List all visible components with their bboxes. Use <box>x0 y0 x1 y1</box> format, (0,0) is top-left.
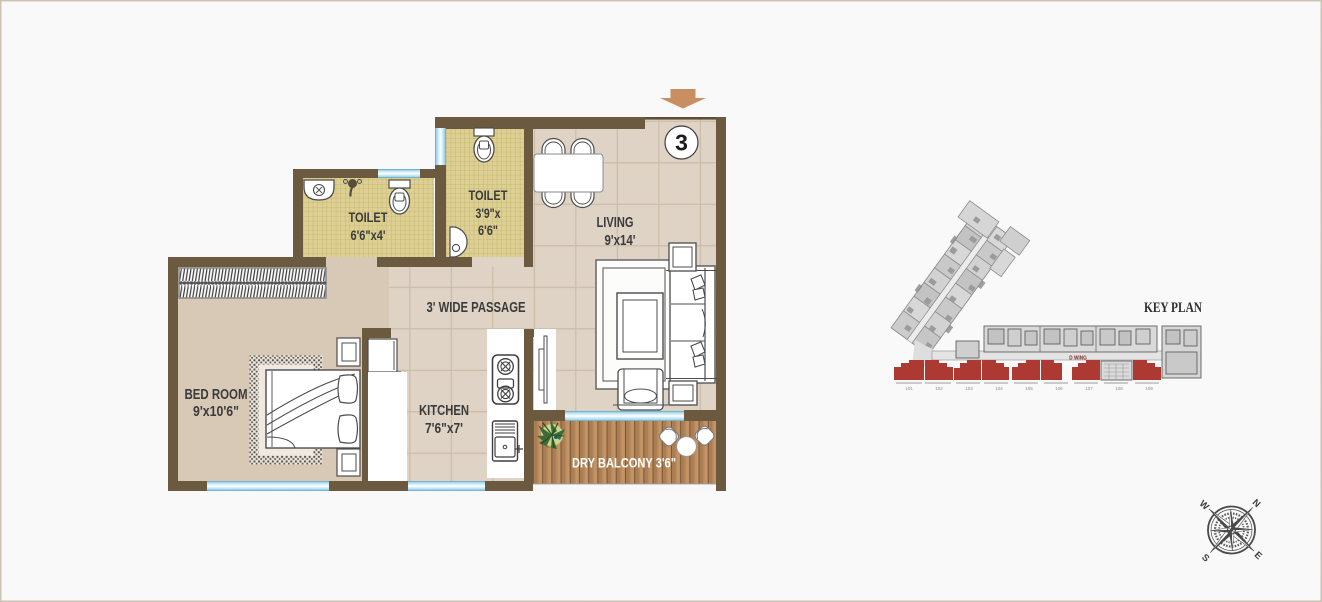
svg-text:6'6"x4': 6'6"x4' <box>351 227 386 243</box>
svg-text:105: 105 <box>1025 386 1033 391</box>
svg-text:KITCHEN: KITCHEN <box>419 403 469 419</box>
svg-text:LIVING: LIVING <box>597 215 634 231</box>
svg-text:TOILET: TOILET <box>349 209 388 225</box>
svg-text:104: 104 <box>995 386 1003 391</box>
svg-text:3' WIDE PASSAGE: 3' WIDE PASSAGE <box>427 300 526 316</box>
svg-text:TOILET: TOILET <box>469 187 508 203</box>
svg-text:108: 108 <box>1115 386 1123 391</box>
svg-text:107: 107 <box>1085 386 1093 391</box>
svg-text:6'6": 6'6" <box>478 222 498 238</box>
svg-text:102: 102 <box>935 386 943 391</box>
svg-text:KEY PLAN: KEY PLAN <box>1144 300 1202 316</box>
svg-text:D WING: D WING <box>1069 356 1087 362</box>
svg-text:DRY BALCONY 3'6": DRY BALCONY 3'6" <box>572 456 676 471</box>
svg-text:3'9"x: 3'9"x <box>476 205 501 221</box>
svg-text:7'6"x7': 7'6"x7' <box>425 421 463 437</box>
svg-text:BED ROOM: BED ROOM <box>185 387 248 403</box>
svg-text:9'x10'6": 9'x10'6" <box>193 404 239 420</box>
svg-text:101: 101 <box>905 386 913 391</box>
svg-text:109: 109 <box>1145 386 1153 391</box>
svg-text:103: 103 <box>965 386 973 391</box>
svg-text:106: 106 <box>1055 386 1063 391</box>
svg-text:9'x14': 9'x14' <box>605 233 636 249</box>
svg-text:3: 3 <box>675 130 688 156</box>
